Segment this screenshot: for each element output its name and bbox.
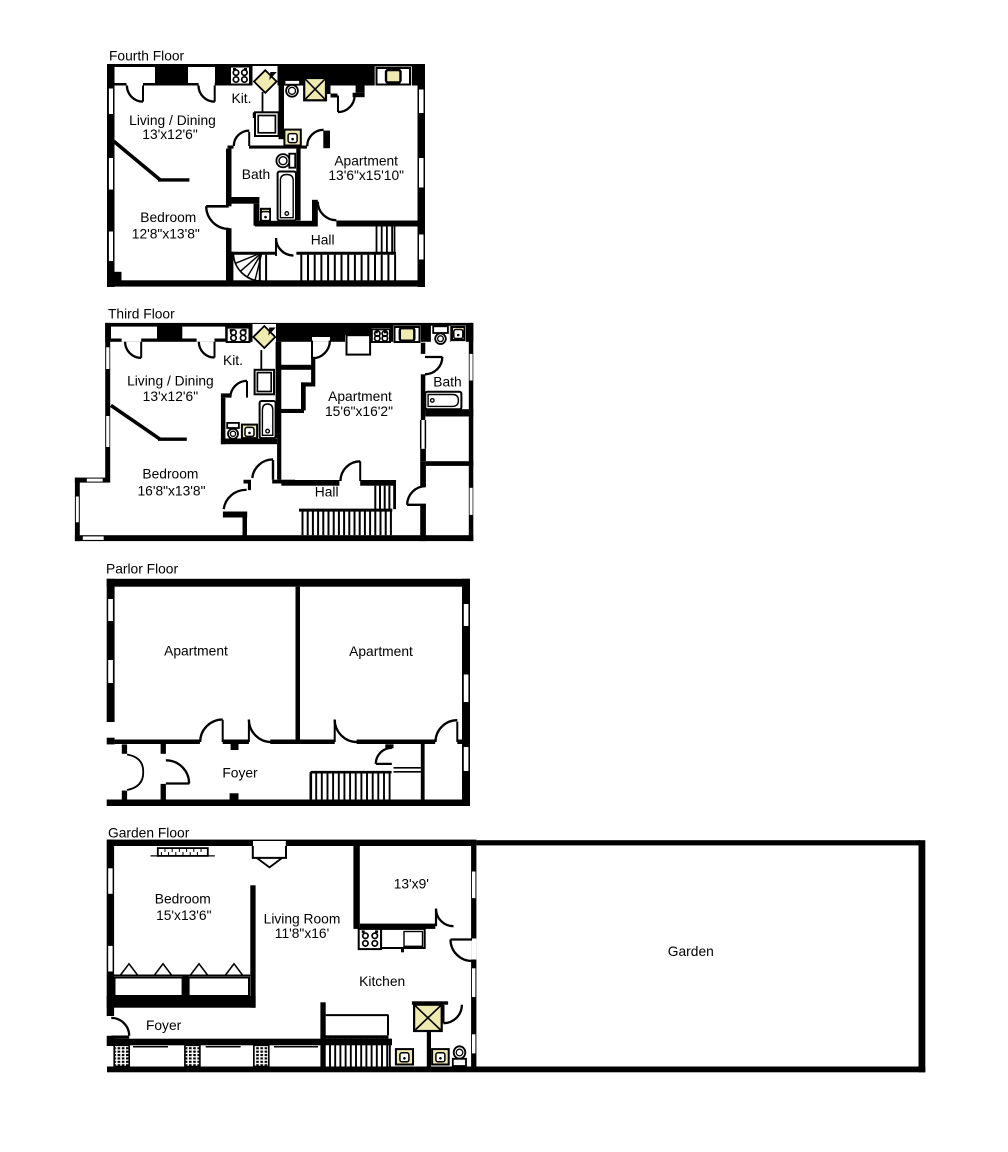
svg-text:Foyer: Foyer [222,766,258,781]
svg-text:Living Room: Living Room [264,912,341,927]
svg-text:Third Floor: Third Floor [108,307,175,322]
svg-text:Apartment: Apartment [349,644,413,659]
svg-text:12'8"x13'8": 12'8"x13'8" [132,227,200,242]
svg-text:Apartment: Apartment [334,154,398,169]
svg-text:Kit.: Kit. [232,91,252,106]
svg-text:Living / Dining: Living / Dining [127,374,214,389]
svg-text:Kit.: Kit. [223,353,243,368]
svg-text:Bath: Bath [433,375,461,390]
svg-text:13'x12'6": 13'x12'6" [143,389,199,404]
svg-text:15'6"x16'2": 15'6"x16'2" [325,404,393,419]
svg-text:Bath: Bath [242,167,270,182]
svg-text:Apartment: Apartment [328,389,392,404]
svg-text:Garden: Garden [668,944,714,959]
svg-text:13'6"x15'10": 13'6"x15'10" [328,168,404,183]
svg-text:Garden Floor: Garden Floor [108,826,190,841]
svg-text:Hall: Hall [311,233,335,248]
svg-text:13'x9': 13'x9' [394,877,429,892]
svg-text:Foyer: Foyer [146,1018,182,1033]
svg-text:Bedroom: Bedroom [140,210,196,225]
svg-text:Apartment: Apartment [164,644,228,659]
svg-text:11'8"x16': 11'8"x16' [275,926,329,941]
svg-text:Parlor Floor: Parlor Floor [106,562,178,577]
svg-text:Fourth Floor: Fourth Floor [109,49,185,64]
svg-text:Hall: Hall [315,485,339,500]
svg-text:Bedroom: Bedroom [155,892,211,907]
svg-text:Kitchen: Kitchen [359,974,405,989]
svg-text:Living / Dining: Living / Dining [129,113,216,128]
svg-text:16'8"x13'8": 16'8"x13'8" [137,484,205,499]
svg-text:13'x12'6": 13'x12'6" [142,127,198,142]
svg-text:15'x13'6": 15'x13'6" [156,908,212,923]
svg-text:Bedroom: Bedroom [142,467,198,482]
